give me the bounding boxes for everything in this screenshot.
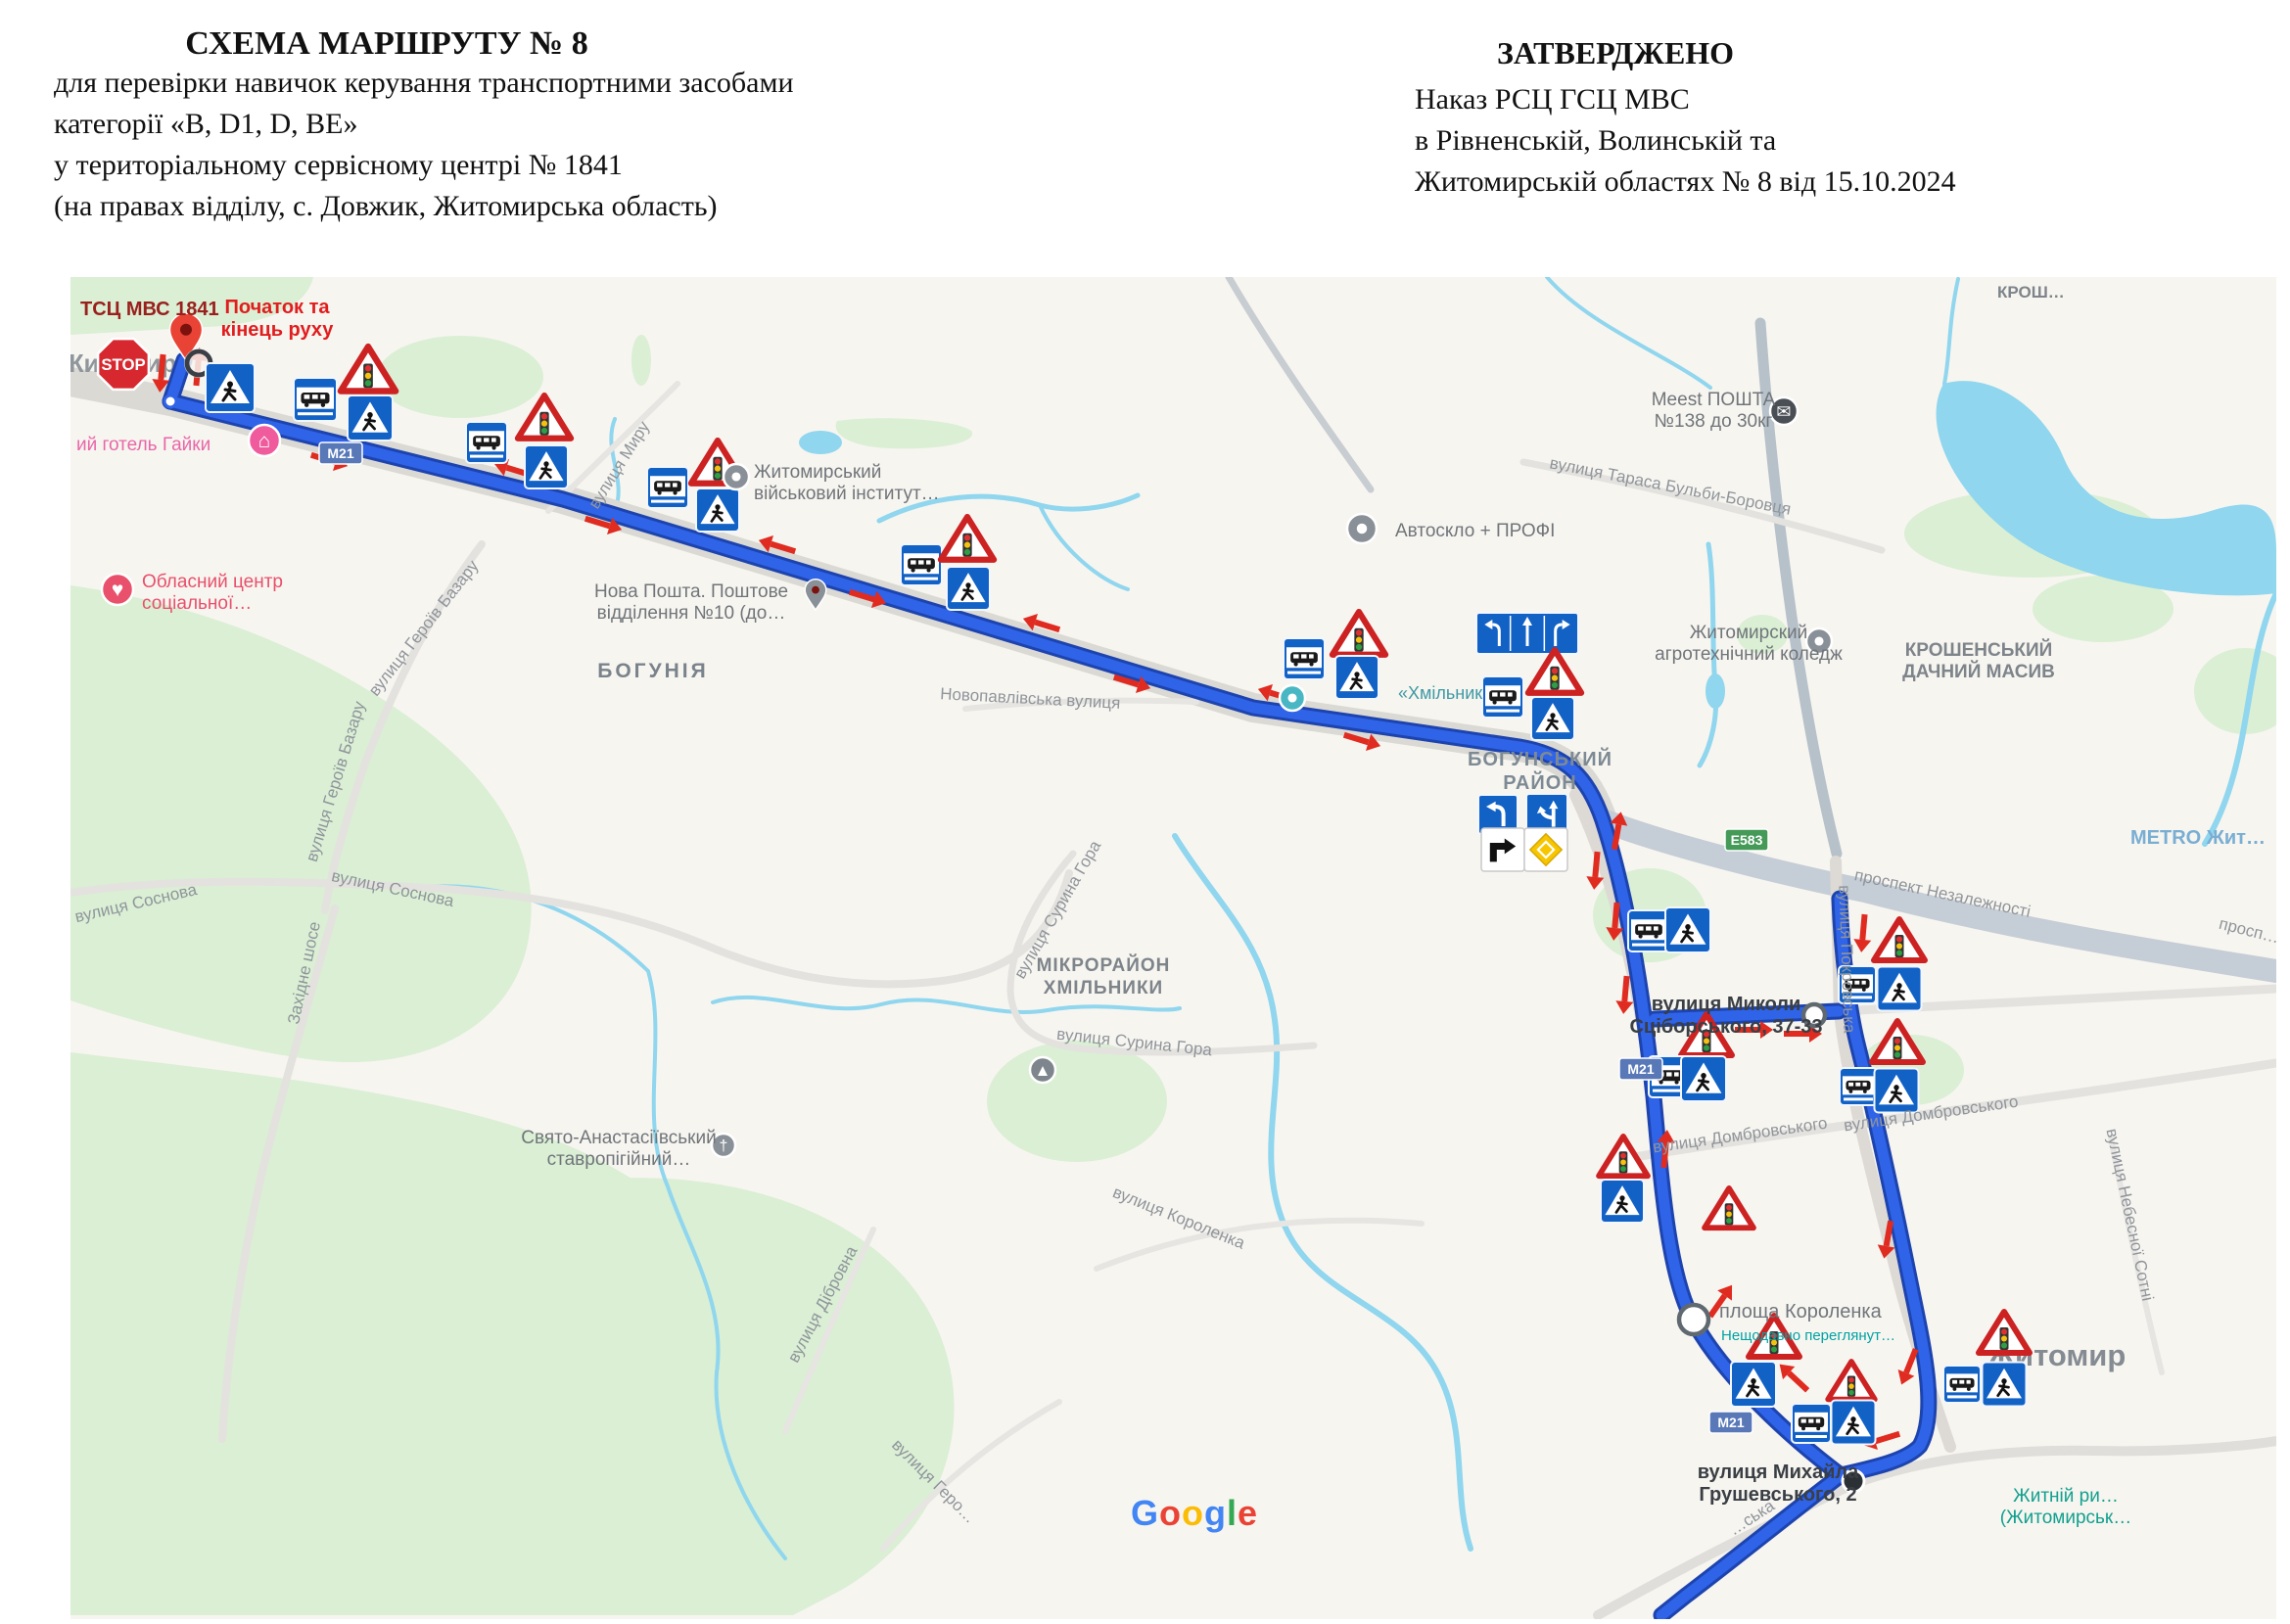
svg-text:✉: ✉ (1776, 401, 1791, 421)
svg-text:БОГУНІЯ: БОГУНІЯ (597, 660, 709, 682)
map-label: ий готель Гайки (76, 435, 210, 455)
map-road (1010, 854, 1314, 1052)
document-subtitle: для перевірки навичок керування транспор… (54, 63, 720, 104)
poi-icon: ▲ (1030, 1057, 1055, 1083)
map-label: Обласний центрсоціальної… (142, 572, 283, 614)
street-label: вулиця Небесної Сотні (2102, 1127, 2157, 1303)
svg-text:вулиця МихайлаГрушевського, 2: вулиця МихайлаГрушевського, 2 (1698, 1462, 1859, 1506)
bus-stop-sign (901, 544, 942, 585)
map-label: МІКРОРАЙОНХМІЛЬНИКИ (1037, 954, 1171, 998)
bus-stop-sign (466, 422, 507, 463)
svg-text:вулиця Героїв Базару: вулиця Героїв Базару (365, 556, 483, 699)
water (1175, 836, 1471, 1549)
green-area (987, 1041, 1167, 1162)
document-subtitle: (на правах відділу, с. Довжик, Житомирсь… (54, 186, 720, 227)
route-node (164, 395, 176, 407)
bus-stop-sign (1284, 638, 1325, 679)
bus-stop-sign (1792, 1404, 1831, 1443)
poi-icon (1347, 514, 1377, 543)
svg-text:Meest ПОШТА№138 до 30кг: Meest ПОШТА№138 до 30кг (1652, 390, 1776, 432)
water (1547, 277, 1710, 388)
svg-text:КРОШЕНСЬКИЙДАЧНИЙ МАСИВ: КРОШЕНСЬКИЙДАЧНИЙ МАСИВ (1902, 639, 2055, 682)
document-subtitle: категорії «В, D1, D, ВЕ» (54, 104, 720, 145)
map-label: Свято-Анастасіївськийставропігійний… (521, 1128, 716, 1170)
green-area (836, 418, 972, 448)
map-label: КРОШ… (1997, 283, 2065, 302)
road-badge: М21 (1619, 1058, 1662, 1080)
traffic-light-warning-sign (1705, 1188, 1753, 1228)
green-area (2194, 648, 2276, 734)
approved-line: в Рівненській, Волинській та (1415, 120, 1963, 162)
green-area (631, 335, 651, 386)
poi-icon: ♥ (102, 574, 133, 605)
start-point-label: Початок такінець руху (221, 297, 335, 341)
svg-text:Обласний центрсоціальної…: Обласний центрсоціальної… (142, 572, 283, 614)
pedestrian-crossing-sign (525, 445, 568, 488)
green-area (377, 336, 543, 418)
priority-road-sign (1524, 828, 1567, 871)
map-road (1097, 1221, 1422, 1269)
map-label: Автоскло + ПРОФІ (1395, 521, 1555, 541)
svg-text:«Хмільник: «Хмільник (1398, 683, 1482, 703)
svg-text:вулиця Домбровського: вулиця Домбровського (1652, 1114, 1829, 1157)
turn-direction-sign (1481, 828, 1524, 871)
svg-text:Початок такінець руху: Початок такінець руху (221, 297, 335, 341)
svg-text:Е583: Е583 (1731, 832, 1763, 848)
svg-text:Google: Google (1131, 1493, 1258, 1533)
document-subtitle: у територіальному сервісному центрі № 18… (54, 145, 720, 186)
start-point-label: ТСЦ МВС 1841 (80, 299, 219, 320)
svg-text:Нова Пошта. Поштовевідділення: Нова Пошта. Поштовевідділення №10 (до… (594, 581, 788, 624)
map-label: КРОШЕНСЬКИЙДАЧНИЙ МАСИВ (1902, 639, 2055, 682)
svg-text:METRO Жит…: METRO Жит… (2130, 827, 2266, 849)
waypoint-marker (1679, 1305, 1708, 1334)
street-label: вулиця Тараса Бульби-Боровця (1548, 453, 1793, 518)
document-header-approved: ЗАТВЕРДЖЕНО Наказ РСЦ ГСЦ МВС в Рівненсь… (1415, 35, 1963, 203)
road-badge: М21 (319, 442, 362, 464)
approved-line: Житомирській областях № 8 від 15.10.2024 (1415, 162, 1963, 203)
pedestrian-crossing-sign (206, 363, 255, 412)
map-label: БОГУНІЯ (597, 660, 709, 682)
svg-text:вулиця Небесної Сотні: вулиця Небесної Сотні (2102, 1127, 2157, 1303)
svg-text:▲: ▲ (1035, 1061, 1052, 1080)
poi-icon (724, 464, 749, 489)
svg-text:ий готель Гайки: ий готель Гайки (76, 435, 210, 455)
bus-stop-sign (1628, 910, 1669, 951)
svg-text:просп…: просп… (2218, 914, 2276, 948)
map-label: METRO Жит… (2130, 827, 2266, 849)
svg-text:КРОШ…: КРОШ… (1997, 283, 2065, 302)
direction-arrow (1774, 1358, 1814, 1397)
svg-text:Нещодавно переглянут…: Нещодавно переглянут… (1721, 1327, 1895, 1344)
document-header-left: СХЕМА МАРШРУТУ № 8 для перевірки навичок… (54, 25, 720, 227)
start-pin (805, 580, 826, 610)
pedestrian-crossing-sign (1681, 1056, 1726, 1101)
water (1040, 505, 1128, 589)
svg-text:Житній ри…(Житомирськ…: Житній ри…(Житомирськ… (2000, 1486, 2132, 1528)
street-label: вулиця Домбровського (1652, 1114, 1829, 1157)
road-badge: Е583 (1725, 829, 1768, 851)
svg-text:вулиця Тараса Бульби-Боровця: вулиця Тараса Бульби-Боровця (1548, 453, 1793, 518)
svg-text:М21: М21 (1627, 1061, 1654, 1077)
map-canvas: ЖитомирЖитомирSTOPМ21М21М21Е583⌂♥✉▲†ТСЦ … (70, 277, 2276, 1619)
map-label: Житомирськийвійськовий інститут… (754, 462, 940, 504)
svg-text:площа Короленка: площа Короленка (1719, 1301, 1883, 1322)
svg-text:♥: ♥ (112, 579, 123, 601)
pedestrian-crossing-sign (1665, 907, 1710, 952)
bus-stop-sign (1482, 676, 1523, 718)
pedestrian-crossing-sign (348, 395, 393, 441)
water (799, 431, 842, 454)
pedestrian-crossing-sign (1983, 1363, 2027, 1407)
bus-stop-sign (294, 378, 337, 421)
pedestrian-crossing-sign (696, 488, 739, 532)
water (1944, 279, 1958, 384)
bus-stop-sign (647, 467, 688, 508)
pedestrian-crossing-sign (1601, 1180, 1644, 1223)
water (713, 998, 1180, 1012)
svg-text:вулиця МиколиСціборського, 37-: вулиця МиколиСціборського, 37-33 (1629, 994, 1822, 1038)
pedestrian-crossing-sign (1832, 1401, 1876, 1445)
map-label: вулиця МиколиСціборського, 37-33 (1629, 994, 1822, 1038)
traffic-light-warning-sign (1874, 919, 1925, 960)
bus-stop-sign (1943, 1366, 1981, 1403)
svg-text:⌂: ⌂ (258, 430, 271, 452)
stop-sign: STOP (98, 339, 149, 390)
route-map[interactable]: ЖитомирЖитомирSTOPМ21М21М21Е583⌂♥✉▲†ТСЦ … (70, 277, 2276, 1619)
street-label: вулиця Героїв Базару (365, 556, 483, 699)
traffic-light-warning-sign (1828, 1362, 1875, 1400)
pedestrian-crossing-sign (1878, 967, 1922, 1011)
map-label: Нова Пошта. Поштовевідділення №10 (до… (594, 581, 788, 624)
map-label: «Хмільник (1398, 683, 1482, 703)
pedestrian-crossing-sign (947, 567, 990, 610)
svg-text:STOP: STOP (101, 355, 145, 374)
map-road (1229, 277, 1371, 489)
lane-direction-sign (1476, 613, 1578, 654)
map-label: Житній ри…(Житомирськ… (2000, 1486, 2132, 1528)
pedestrian-crossing-sign (1731, 1362, 1776, 1407)
bus-stop-sign (1840, 1068, 1877, 1105)
page: { "header": { "title": "СХЕМА МАРШРУТУ №… (0, 0, 2290, 1619)
svg-text:М21: М21 (1717, 1415, 1744, 1430)
pedestrian-crossing-sign (1531, 697, 1574, 740)
poi-icon: ⌂ (249, 425, 280, 456)
svg-text:М21: М21 (327, 445, 353, 461)
map-label: площа Короленка (1719, 1301, 1883, 1322)
svg-text:†: † (720, 1137, 728, 1154)
street-label: просп… (2218, 914, 2276, 948)
traffic-light-warning-sign (1528, 650, 1581, 693)
svg-text:Свято-Анастасіївськийставропіг: Свято-Анастасіївськийставропігійний… (521, 1128, 716, 1170)
traffic-light-warning-sign (1332, 612, 1385, 655)
svg-text:ТСЦ МВС 1841: ТСЦ МВС 1841 (80, 299, 219, 320)
svg-text:МІКРОРАЙОНХМІЛЬНИКИ: МІКРОРАЙОНХМІЛЬНИКИ (1037, 954, 1171, 998)
map-label: вулиця МихайлаГрушевського, 2 (1698, 1462, 1859, 1506)
traffic-light-warning-sign (1979, 1312, 2030, 1353)
svg-text:Житомирськийвійськовий інститу: Житомирськийвійськовий інститут… (754, 462, 940, 504)
svg-text:Автоскло + ПРОФІ: Автоскло + ПРОФІ (1395, 521, 1555, 541)
map-label: Нещодавно переглянут… (1721, 1327, 1895, 1344)
approved-title: ЗАТВЕРДЖЕНО (1469, 35, 1762, 71)
google-logo: Google (1131, 1493, 1258, 1533)
poi-icon (1280, 685, 1305, 711)
document-title: СХЕМА МАРШРУТУ № 8 (113, 25, 661, 63)
pedestrian-crossing-sign (1335, 656, 1379, 699)
approved-line: Наказ РСЦ ГСЦ МВС (1415, 79, 1963, 120)
traffic-light-warning-sign (941, 517, 994, 560)
road-badge: М21 (1709, 1412, 1753, 1433)
map-label: Meest ПОШТА№138 до 30кг (1652, 390, 1776, 432)
